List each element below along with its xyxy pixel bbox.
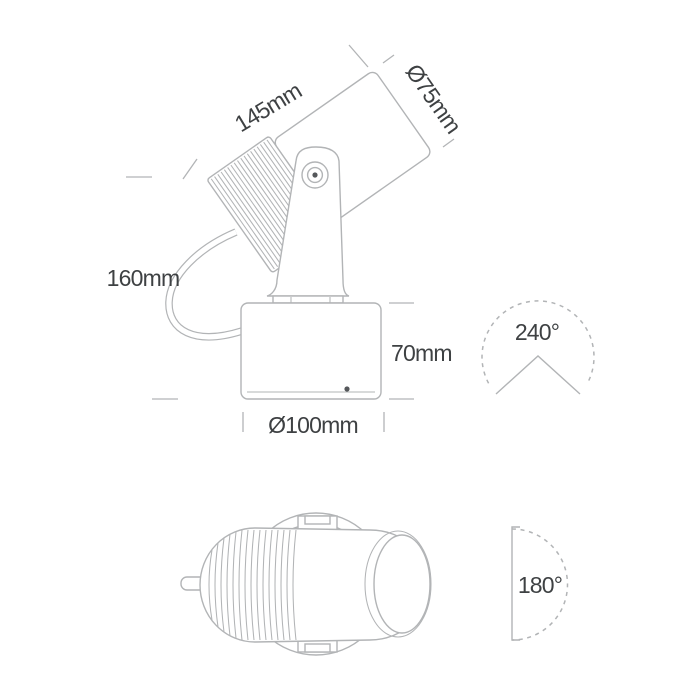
dim-tick	[443, 139, 454, 147]
dim-overall-height-label: 160mm	[107, 265, 180, 291]
rotation-angle-label: 180°	[518, 572, 562, 598]
rotation-range-icon: 180°	[512, 527, 568, 640]
tilt-angle-label: 240°	[515, 319, 559, 345]
dim-base-diameter-label: Ø100mm	[268, 412, 358, 438]
dim-tick	[383, 55, 394, 63]
dim-tick	[183, 159, 197, 179]
top-view-figure: 180°	[181, 513, 568, 655]
dim-tick	[349, 45, 368, 67]
lens-opening	[374, 535, 430, 633]
tilt-range-chevron	[496, 356, 580, 394]
dim-base-height-label: 70mm	[391, 340, 452, 366]
base-cylinder	[241, 303, 381, 399]
arm-flange	[273, 296, 343, 303]
cable-loop	[169, 232, 242, 337]
dimension-drawing-canvas: 145mm Ø75mm 160mm 70mm Ø100mm	[0, 0, 700, 700]
dim-overall-height: 160mm	[107, 177, 180, 399]
dim-base-diameter: Ø100mm	[243, 412, 384, 438]
base-screw-dot	[344, 386, 349, 391]
tilt-range-icon: 240°	[482, 301, 594, 394]
bracket-tab-top-notch	[305, 516, 330, 524]
spotlight-dimension-diagram: 145mm Ø75mm 160mm 70mm Ø100mm	[0, 0, 700, 700]
dim-base-height: 70mm	[389, 303, 452, 399]
bracket-tab-bottom-notch	[305, 644, 330, 652]
side-view-figure: 145mm Ø75mm 160mm 70mm Ø100mm	[107, 45, 594, 438]
